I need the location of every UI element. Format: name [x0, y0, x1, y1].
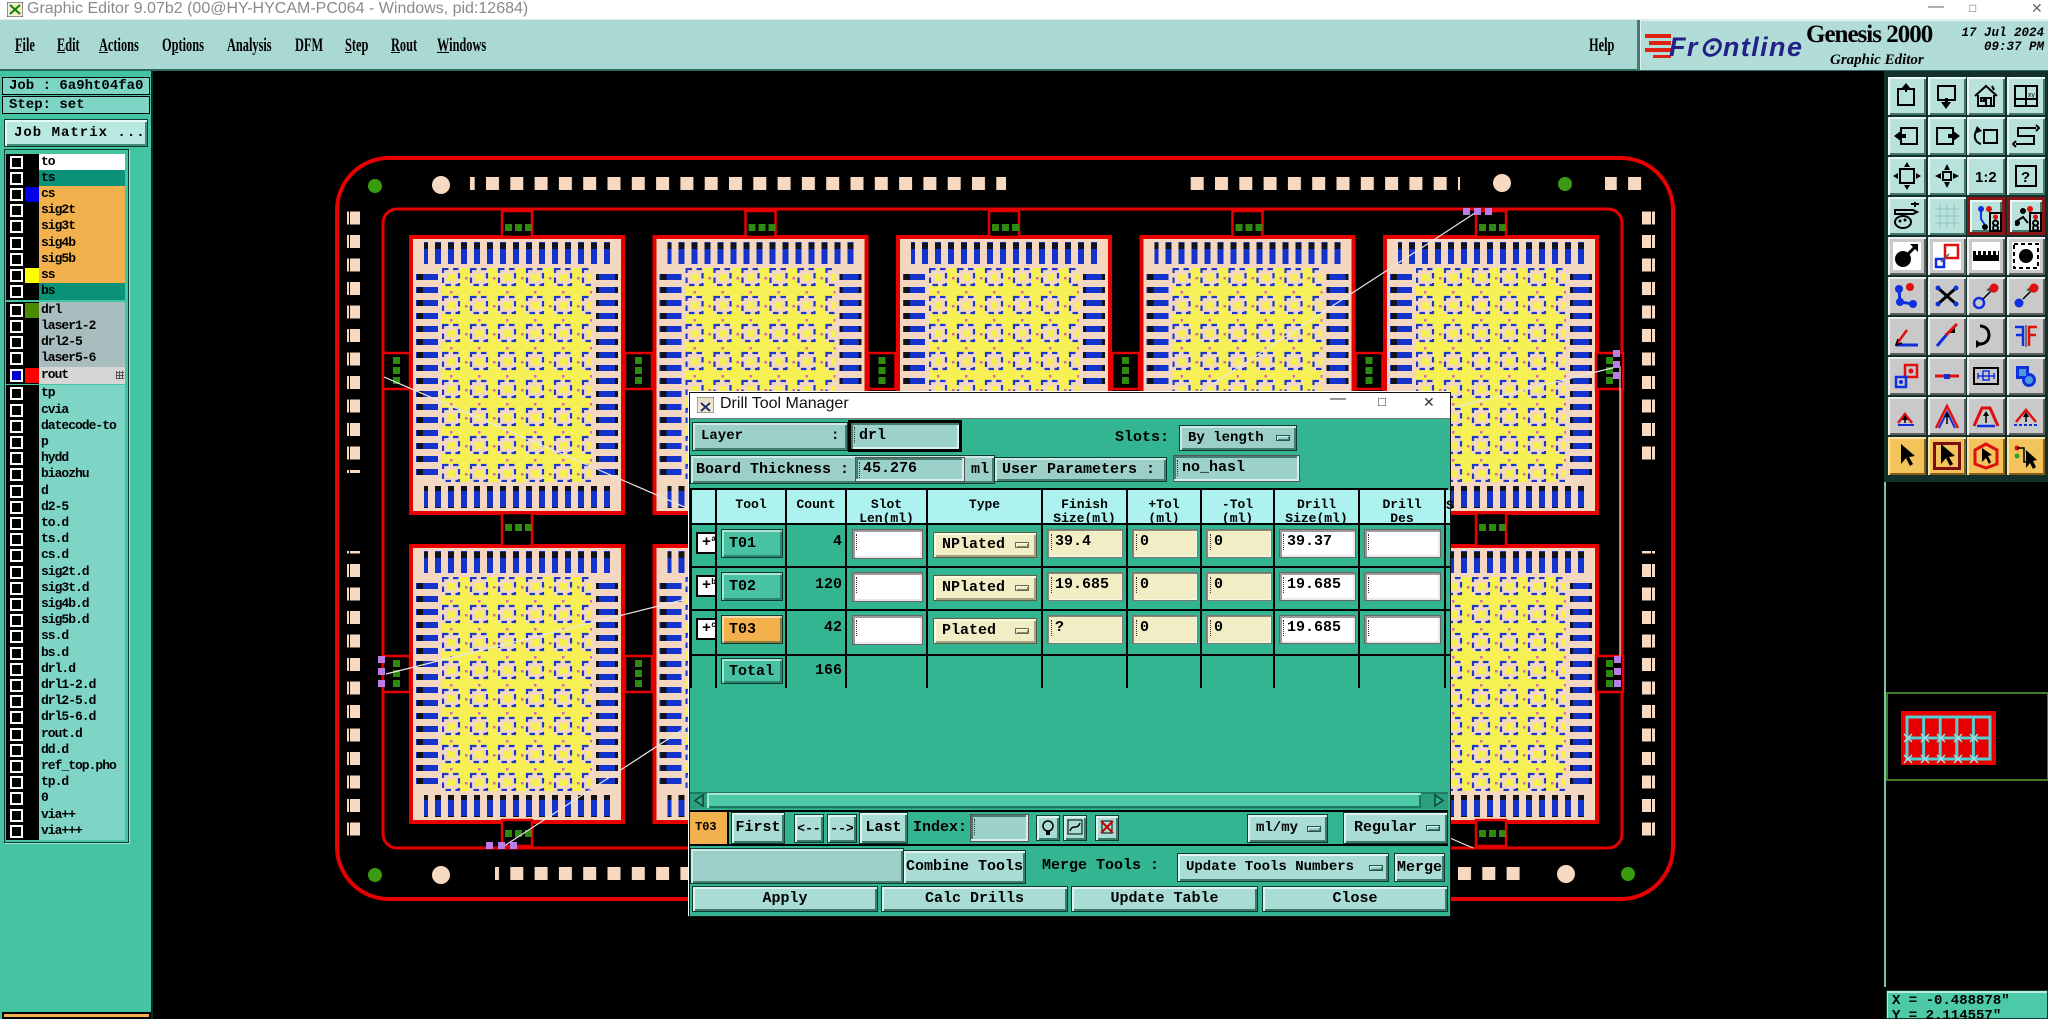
svg-text:Fr⊙ntline: Fr⊙ntline	[1669, 32, 1802, 61]
svg-text:xy: xy	[2028, 92, 2036, 99]
svg-text:?: ?	[2021, 169, 2030, 186]
svg-text:1:2: 1:2	[1975, 169, 1997, 186]
